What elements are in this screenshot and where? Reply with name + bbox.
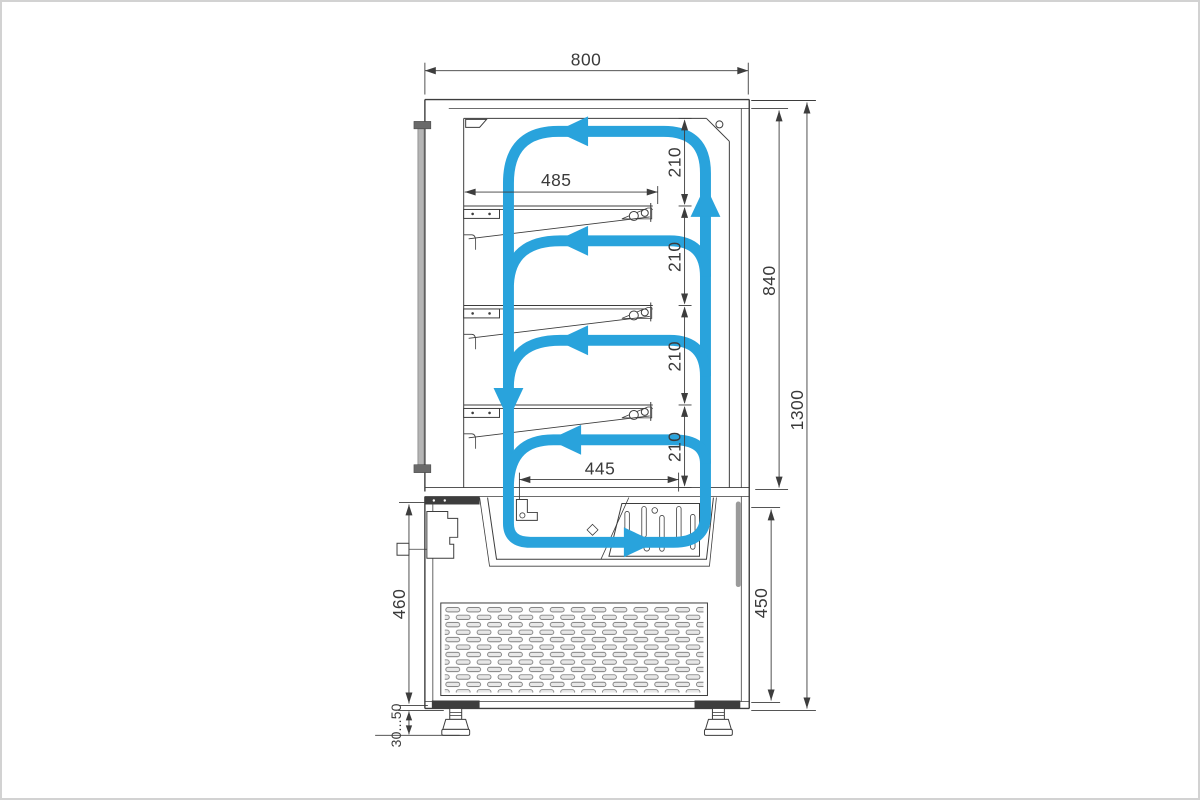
glass-front bbox=[414, 121, 431, 472]
dim-return-opening-label: 445 bbox=[585, 459, 616, 479]
dim-base-inner-height-label: 450 bbox=[751, 588, 771, 619]
dim-shelf-gaps: 210 210 210 210 bbox=[665, 118, 692, 487]
wall-step bbox=[464, 434, 476, 449]
dim-gap4-label: 210 bbox=[665, 431, 685, 462]
base-unit bbox=[397, 488, 749, 736]
display-case-drawing: 800 485 2 bbox=[2, 2, 1198, 798]
dim-overall-width: 800 bbox=[425, 50, 748, 95]
dim-overall-height-label: 1300 bbox=[787, 390, 807, 431]
fitting-body bbox=[427, 511, 458, 558]
foot-stem bbox=[450, 708, 462, 719]
vent-hole-icon bbox=[652, 508, 658, 514]
dim-return-opening: 445 bbox=[519, 459, 678, 500]
bracket-screw-icon bbox=[488, 412, 491, 415]
dim-shelf-width: 485 bbox=[465, 170, 658, 204]
shelf-roller-icon bbox=[641, 309, 648, 316]
wall-step bbox=[464, 235, 476, 250]
arrow-left-icon bbox=[556, 325, 588, 355]
trim-screw-icon bbox=[433, 499, 435, 501]
fitting-valve bbox=[397, 543, 409, 555]
bracket-screw-icon bbox=[471, 412, 474, 415]
bracket-screw-icon bbox=[488, 213, 491, 216]
ventilation-grille bbox=[441, 603, 708, 696]
foot-stem bbox=[712, 708, 724, 719]
dim-base-height-label: 460 bbox=[389, 589, 409, 620]
shelf-roller-icon bbox=[641, 408, 648, 415]
shelf-left-bracket bbox=[464, 309, 500, 318]
bracket-screw-icon bbox=[471, 213, 474, 216]
foot-base bbox=[704, 729, 732, 735]
vent-slot bbox=[642, 506, 646, 537]
basin-bracket bbox=[516, 500, 537, 521]
dim-gap1-label: 210 bbox=[665, 147, 685, 178]
technical-drawing-page: 800 485 2 bbox=[0, 0, 1200, 800]
glass-pane bbox=[418, 128, 423, 465]
compressor-fitting bbox=[397, 511, 458, 558]
arrow-left-icon bbox=[549, 425, 581, 455]
sensor-icon bbox=[587, 524, 598, 535]
grille-slots bbox=[445, 606, 704, 693]
trim-screw-icon bbox=[444, 499, 446, 501]
foot-mount-plate bbox=[695, 700, 741, 708]
screw-icon bbox=[716, 121, 723, 128]
shelf-left-bracket bbox=[464, 408, 500, 417]
handle-bar bbox=[736, 501, 741, 587]
bracket-screw-icon bbox=[488, 312, 491, 315]
glass-bottom-cap bbox=[414, 465, 431, 473]
foot-mount-plate bbox=[432, 700, 480, 708]
bracket-hole-icon bbox=[520, 513, 525, 518]
vent-slot bbox=[677, 506, 681, 540]
dim-base-inner-height: 450 bbox=[751, 507, 780, 702]
wall-step bbox=[464, 334, 476, 349]
foot-cone bbox=[443, 719, 469, 729]
adjustable-foot-right bbox=[695, 700, 741, 735]
dim-leg-adjustment-label: 30...50 bbox=[388, 703, 404, 747]
bracket-screw-icon bbox=[471, 312, 474, 315]
adjustable-foot-left bbox=[432, 700, 480, 735]
ceiling-bracket bbox=[466, 119, 487, 127]
foot-base bbox=[442, 729, 470, 735]
dim-shelf-width-label: 485 bbox=[541, 170, 572, 190]
dim-display-height-label: 840 bbox=[759, 265, 779, 296]
dim-gap3-label: 210 bbox=[665, 341, 685, 372]
dim-overall-width-label: 800 bbox=[571, 50, 602, 70]
arrow-left-icon bbox=[556, 226, 588, 256]
glass-top-cap bbox=[414, 121, 431, 128]
arrow-left-icon bbox=[556, 116, 588, 146]
shelf-left-bracket bbox=[464, 209, 500, 218]
dim-gap2-label: 210 bbox=[665, 241, 685, 272]
dim-display-height: 840 bbox=[751, 108, 788, 489]
arrow-up-icon bbox=[691, 185, 721, 217]
dim-base-height: 460 bbox=[389, 502, 428, 705]
airflow-circulation bbox=[494, 116, 721, 557]
foot-cone bbox=[705, 719, 731, 729]
shelf-roller-icon bbox=[641, 209, 648, 216]
